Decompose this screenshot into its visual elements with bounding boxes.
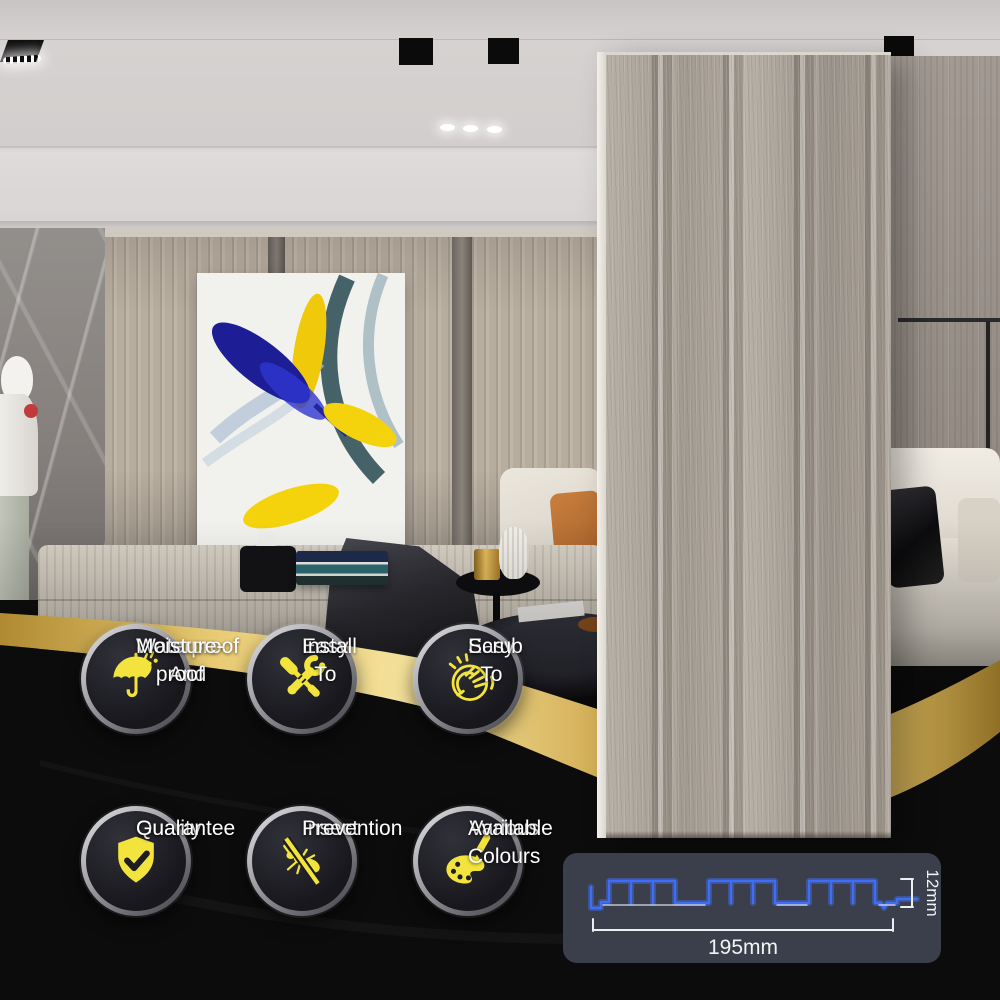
profile-diagram-card: 195mm 12mm: [563, 853, 941, 963]
height-dimension-label: 12mm: [923, 869, 941, 916]
wall-panel-product-sample: [597, 52, 891, 838]
wall-panel-product-graphic: Waterproof AndMoisture-proof Easy ToInst…: [0, 0, 1000, 1000]
panel-wood-surface: [606, 52, 891, 838]
width-dimension-label: 195mm: [708, 936, 778, 959]
panel-cross-section-diagram: 195mm 12mm: [563, 853, 941, 963]
panel-side-edge: [597, 52, 606, 838]
